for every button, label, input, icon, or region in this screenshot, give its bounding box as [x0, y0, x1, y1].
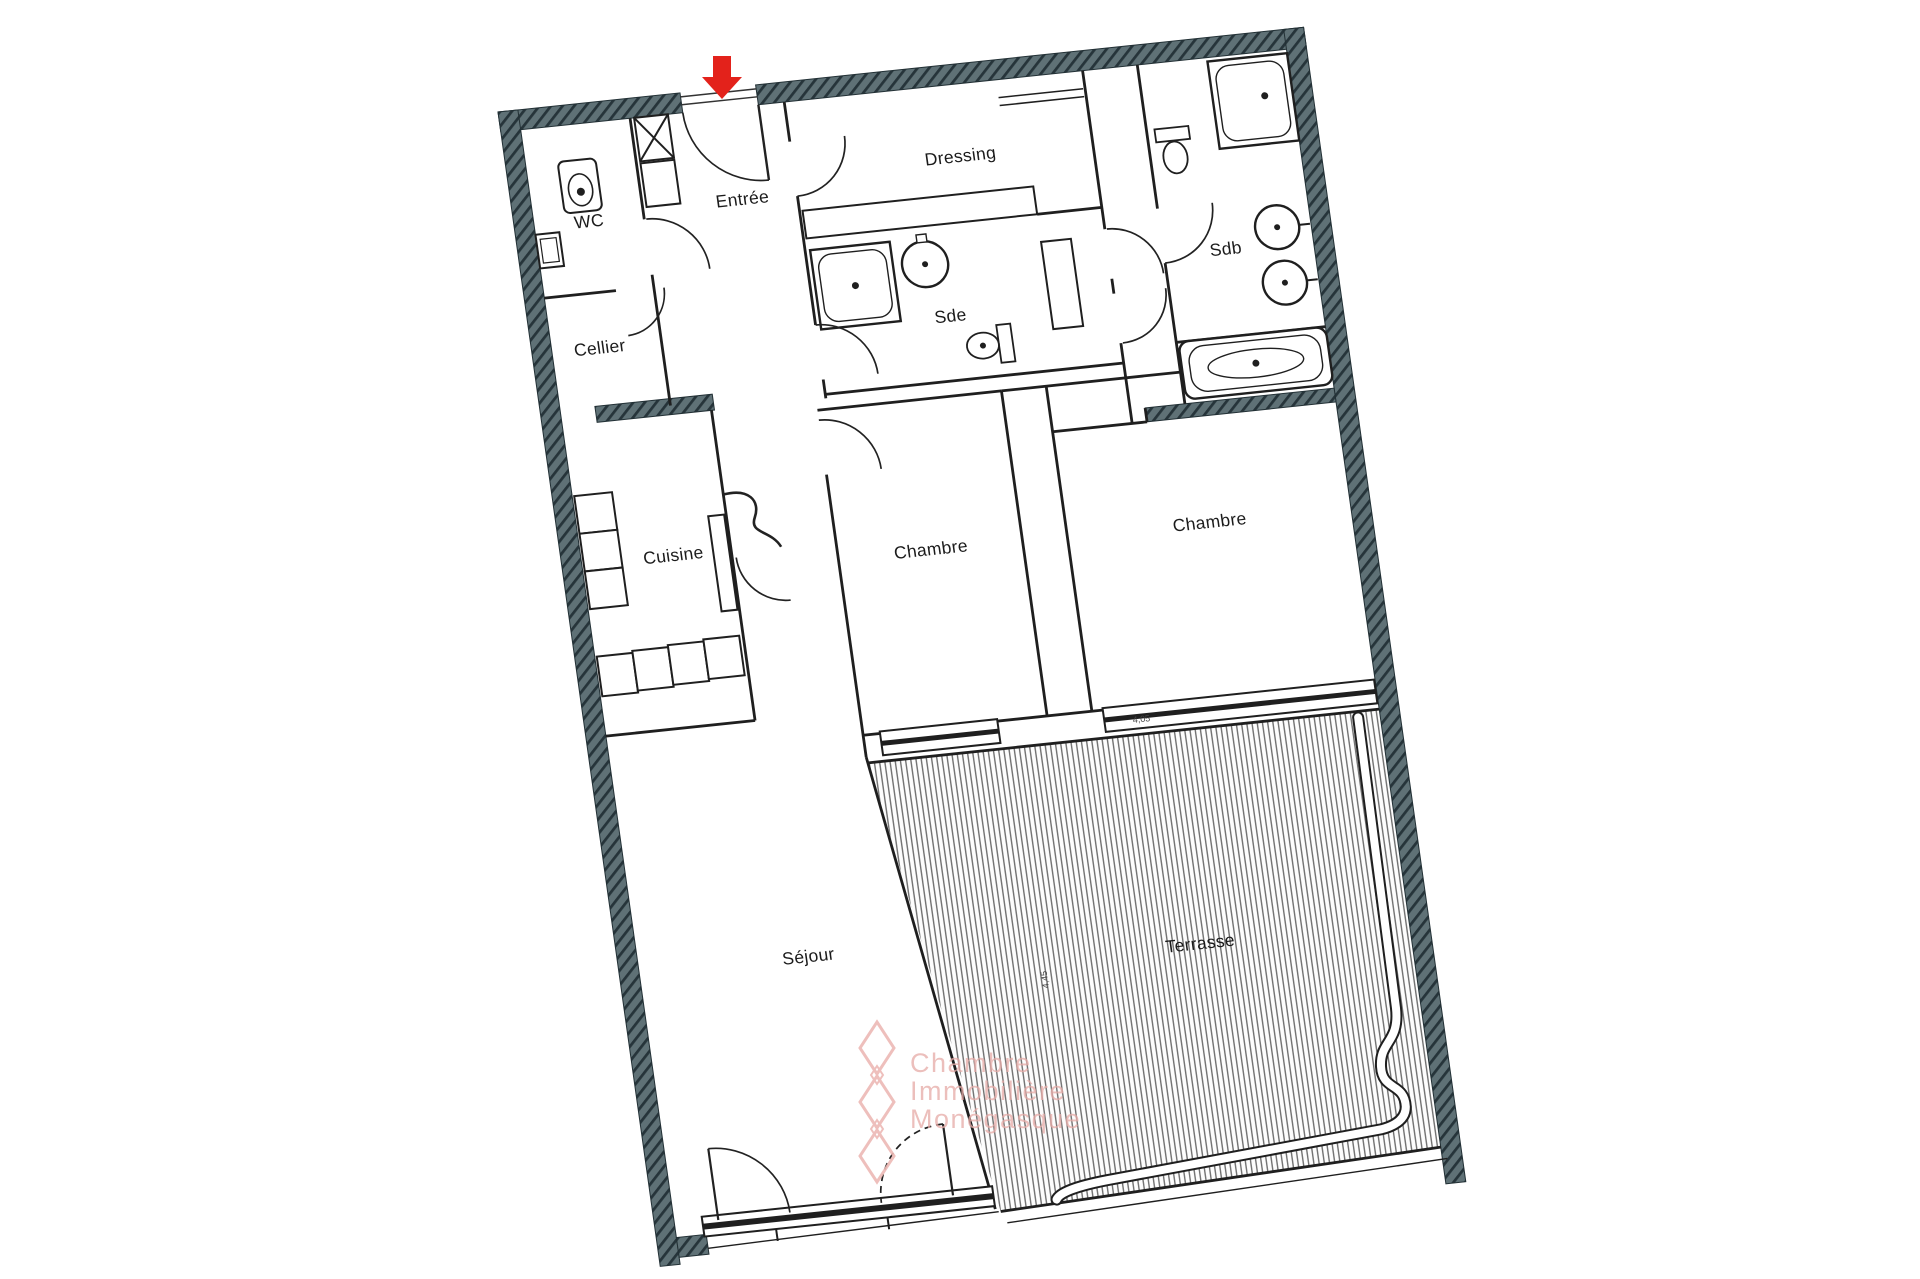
wall-cellier-cuisine — [595, 394, 715, 422]
watermark-line3: Monégasque — [910, 1104, 1081, 1134]
room-label-cellier: Cellier — [573, 335, 627, 360]
room-label-entree: Entrée — [714, 186, 770, 211]
door-sejour — [736, 553, 790, 606]
dressing-rod — [999, 89, 1084, 98]
room-label-sde: Sde — [933, 304, 968, 327]
dimension-terrasse-width: 4,05 — [1132, 713, 1151, 725]
door-chambre1 — [819, 414, 881, 474]
door-entrance — [683, 105, 769, 188]
dressing-wardrobe — [803, 186, 1038, 238]
room-label-cuisine: Cuisine — [642, 542, 705, 568]
door-wc — [646, 213, 709, 274]
sde-fixtures — [810, 227, 1016, 381]
floor-plan-svg: WC Entrée Dressing Cellier Sde Sdb Cuisi… — [0, 0, 1920, 1279]
door-hall-upper — [1107, 224, 1164, 279]
entrance-arrow-icon — [702, 56, 742, 99]
sde-cabinet — [1041, 239, 1083, 329]
kitchen-counters — [574, 481, 747, 696]
room-label-sdb: Sdb — [1208, 237, 1243, 260]
wall-bottom-stub — [676, 1234, 709, 1257]
room-label-wc: WC — [573, 210, 605, 233]
terrace-decking — [869, 710, 1443, 1218]
room-label-dressing: Dressing — [923, 142, 997, 169]
toilet-icon — [1154, 126, 1190, 142]
room-label-chambre2: Chambre — [1171, 508, 1247, 536]
door-dressing — [790, 136, 852, 196]
room-label-sejour: Séjour — [781, 944, 836, 969]
watermark-diamonds-icon — [860, 1022, 894, 1182]
door-hall-lower — [1116, 288, 1173, 343]
watermark-line1: Chambre — [910, 1048, 1032, 1078]
floor-plan-page: WC Entrée Dressing Cellier Sde Sdb Cuisi… — [0, 0, 1920, 1279]
curved-wall-sejour — [723, 489, 781, 552]
door-cellier — [622, 288, 670, 336]
room-label-chambre1: Chambre — [893, 535, 969, 563]
entry-shelf-icon — [640, 160, 680, 207]
watermark-line2: Immobilière — [910, 1076, 1066, 1106]
